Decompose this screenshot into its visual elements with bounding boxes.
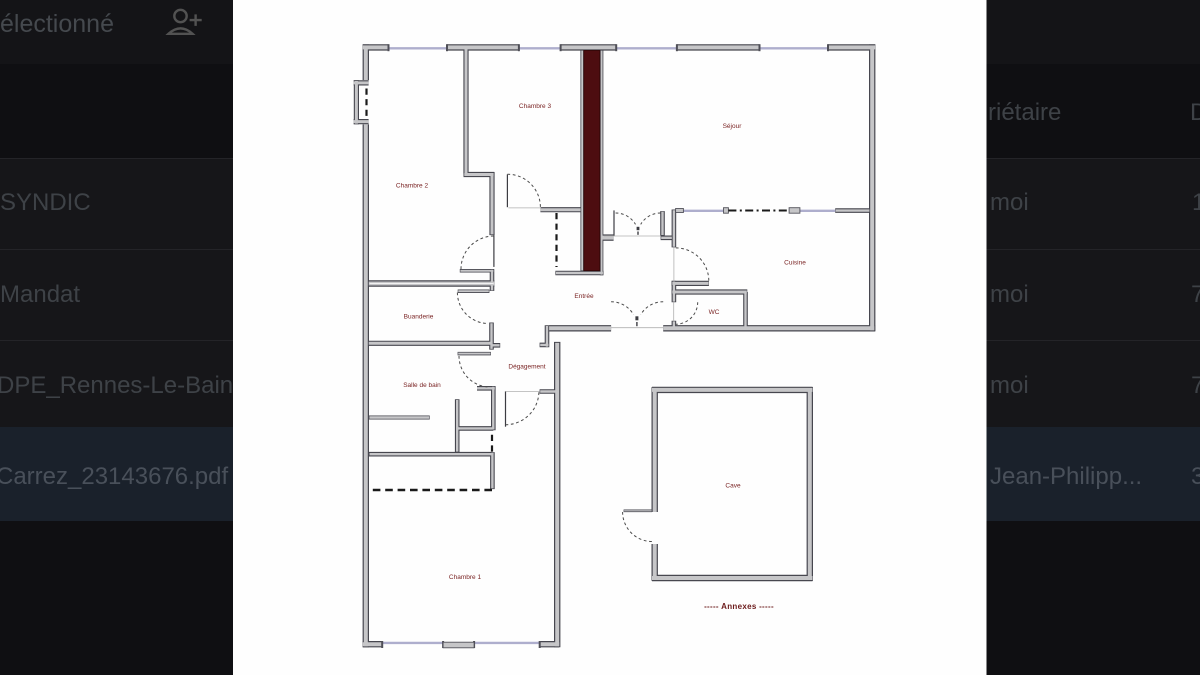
svg-text:Chambre 1: Chambre 1 xyxy=(449,574,482,581)
svg-text:Séjour: Séjour xyxy=(723,123,743,130)
svg-text:Salle de bain: Salle de bain xyxy=(403,382,441,389)
svg-text:WC: WC xyxy=(709,309,720,316)
svg-text:Cuisine: Cuisine xyxy=(784,260,806,267)
svg-text:----- Annexes -----: ----- Annexes ----- xyxy=(704,602,774,611)
svg-text:Chambre 2: Chambre 2 xyxy=(396,183,429,190)
svg-text:Cave: Cave xyxy=(725,483,741,490)
svg-text:Entrée: Entrée xyxy=(574,293,594,300)
svg-text:Chambre 3: Chambre 3 xyxy=(519,103,552,110)
svg-text:Dégagement: Dégagement xyxy=(508,364,545,371)
svg-text:Buanderie: Buanderie xyxy=(404,314,434,321)
